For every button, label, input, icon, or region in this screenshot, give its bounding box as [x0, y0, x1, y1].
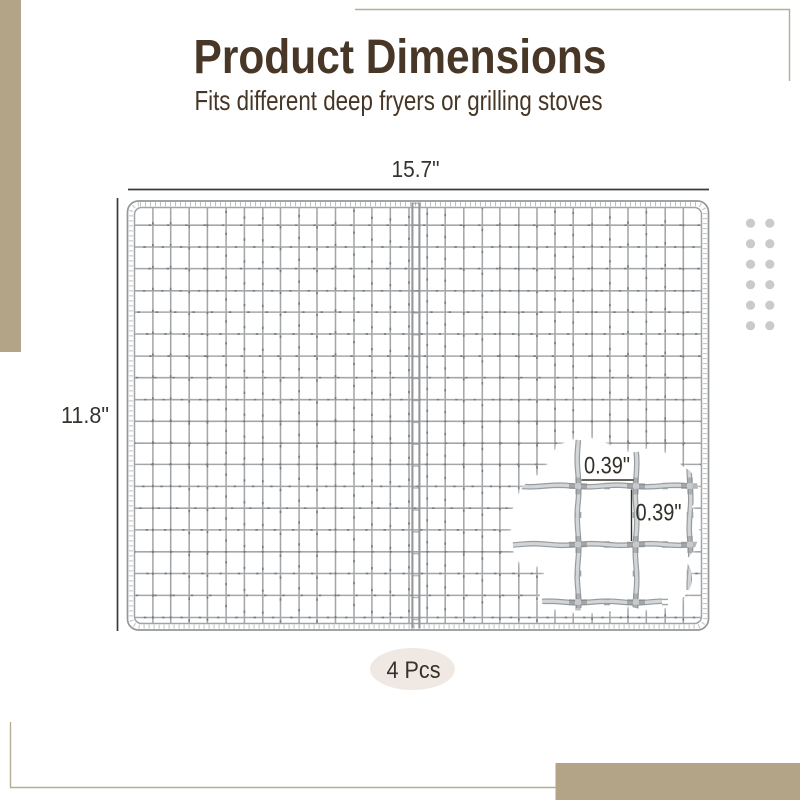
svg-text:4 Pcs: 4 Pcs [387, 657, 441, 684]
svg-text:0.39": 0.39" [584, 453, 630, 480]
svg-text:Product Dimensions: Product Dimensions [194, 31, 607, 84]
svg-text:15.7": 15.7" [392, 156, 440, 182]
svg-text:0.39": 0.39" [636, 500, 682, 527]
svg-text:Fits different deep fryers or: Fits different deep fryers or grilling s… [195, 85, 603, 116]
svg-text:11.8": 11.8" [61, 402, 109, 428]
